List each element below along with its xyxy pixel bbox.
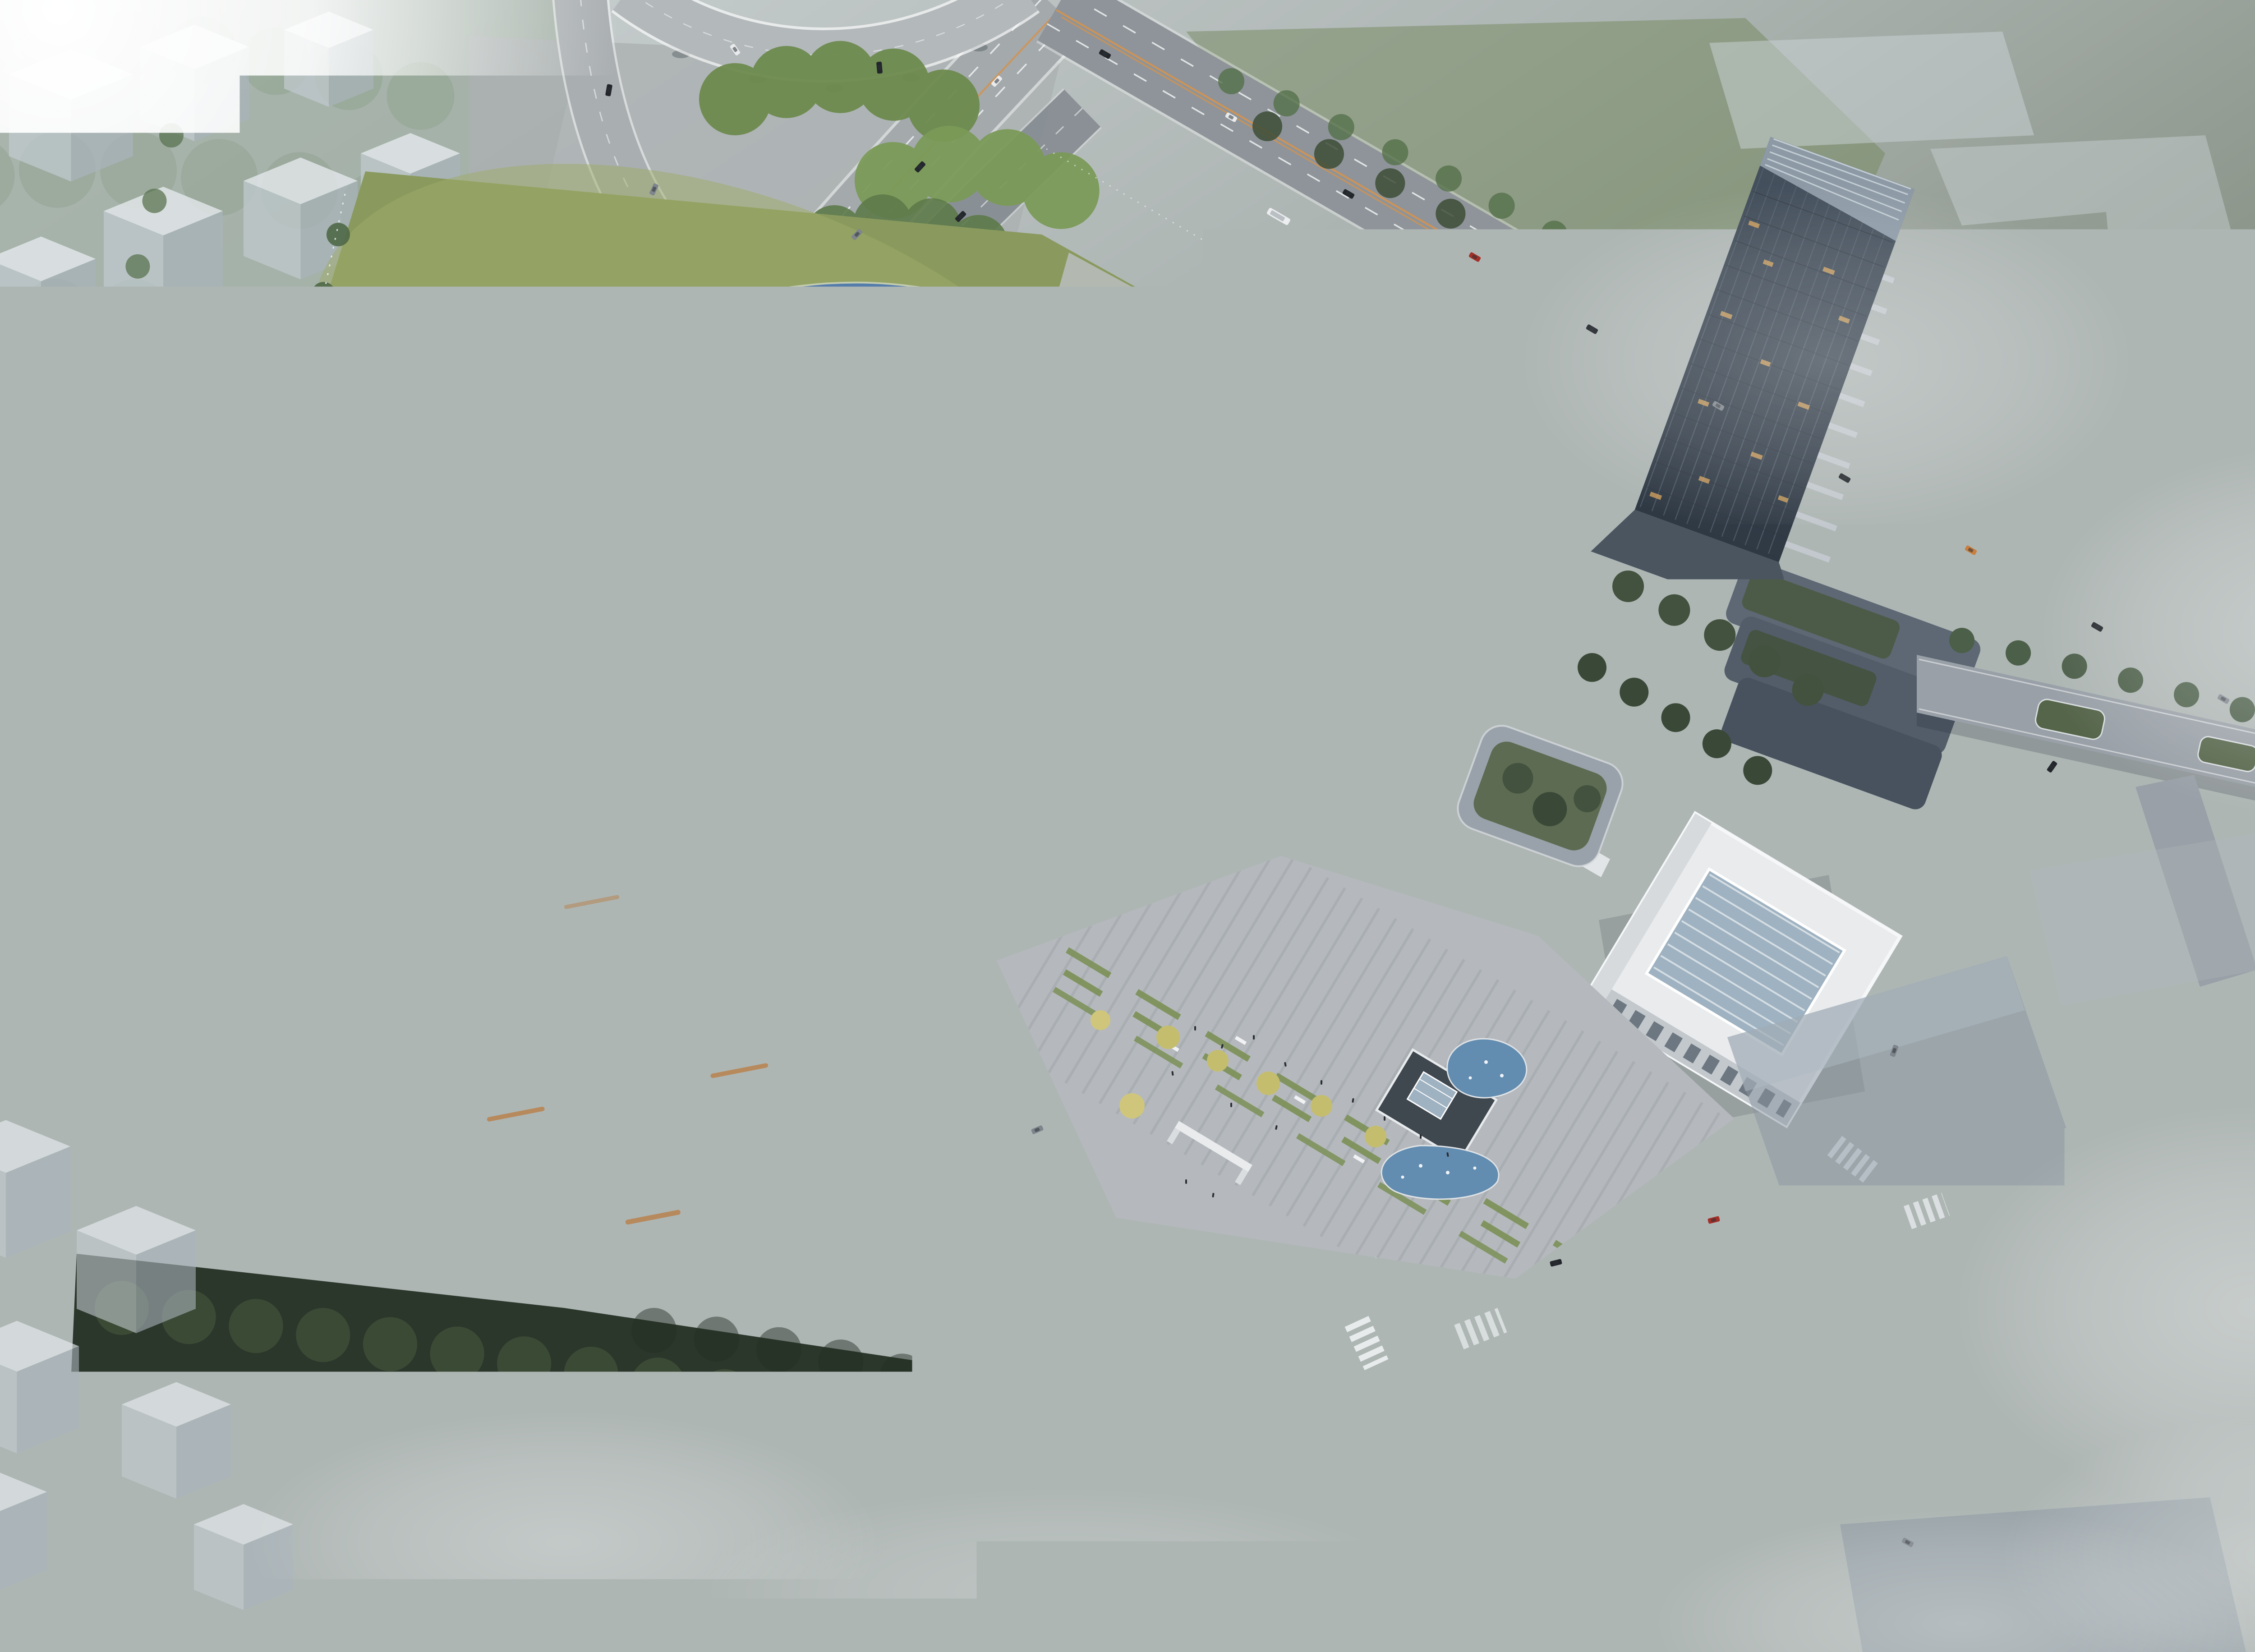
aerial-campus-rendering xyxy=(0,0,2255,1652)
southeast-shade xyxy=(0,0,2255,1652)
